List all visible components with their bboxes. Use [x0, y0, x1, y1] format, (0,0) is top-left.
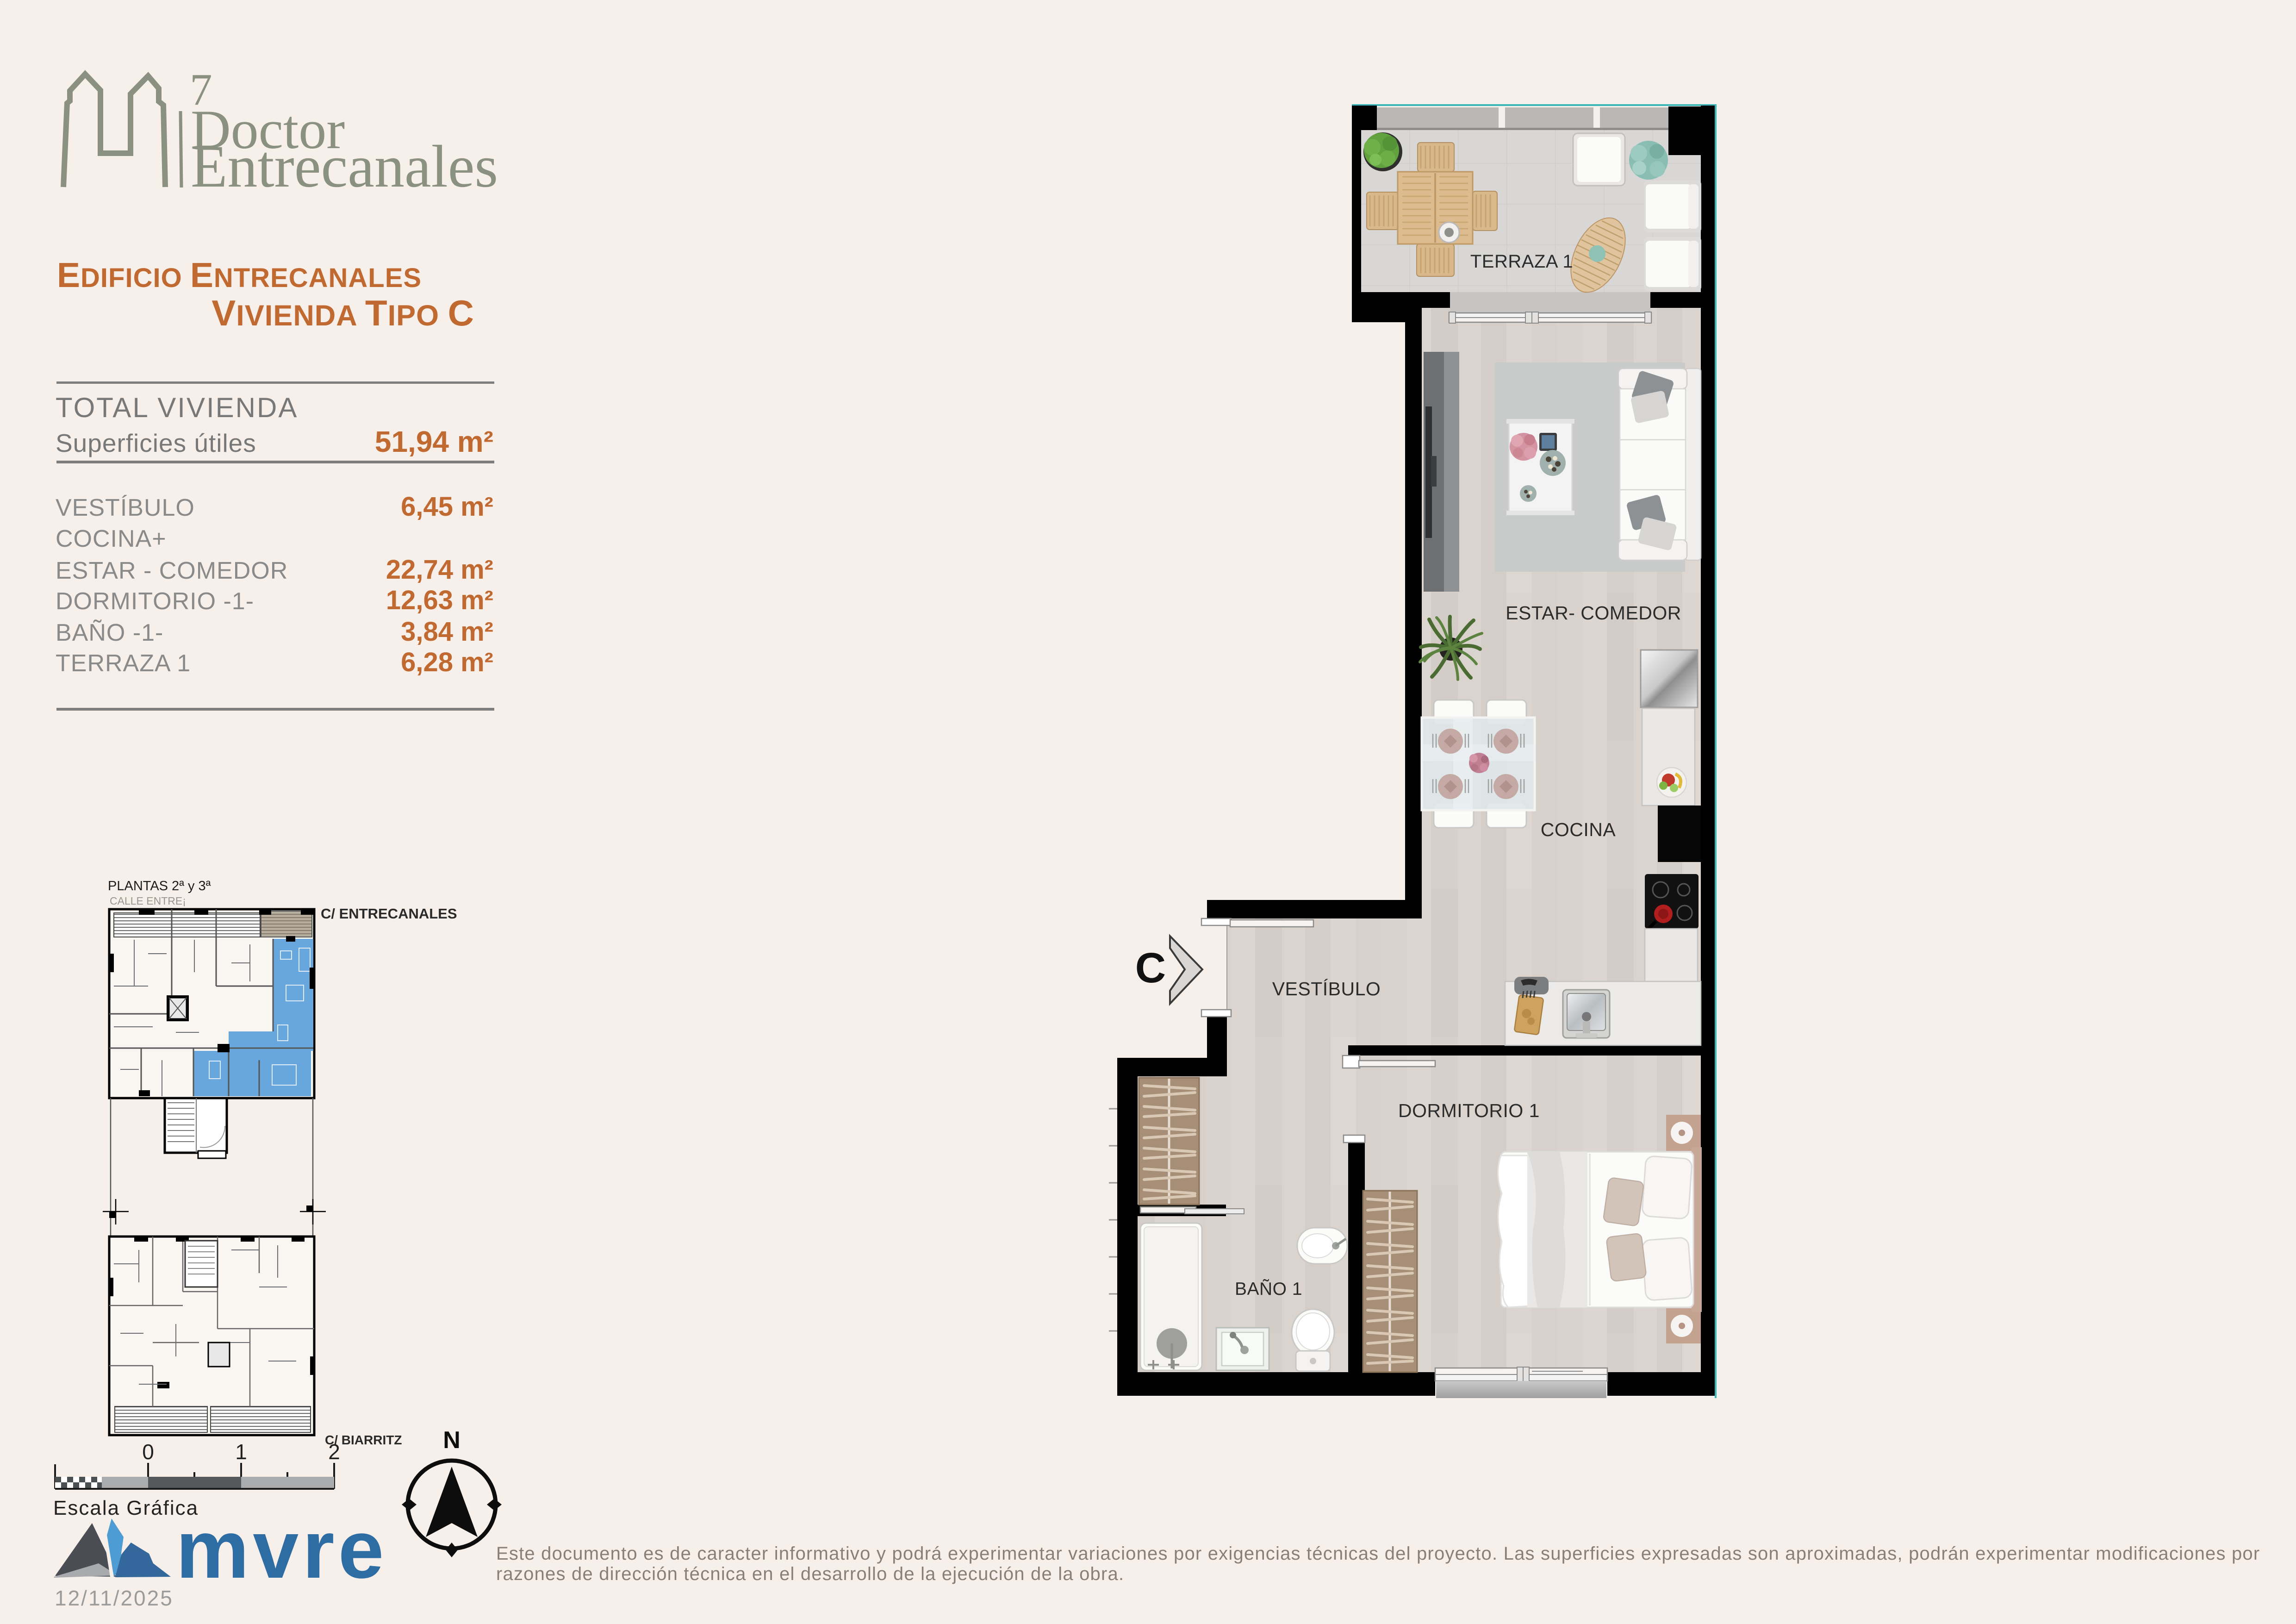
svg-text:VESTÍBULO: VESTÍBULO	[56, 494, 195, 521]
svg-text:12/11/2025: 12/11/2025	[55, 1586, 174, 1610]
svg-text:Entrecanales: Entrecanales	[191, 133, 498, 200]
svg-text:COCINA+: COCINA+	[56, 525, 167, 552]
svg-text:TERRAZA 1: TERRAZA 1	[1470, 251, 1573, 272]
svg-text:1: 1	[235, 1440, 247, 1464]
svg-text:mvre: mvre	[176, 1503, 388, 1595]
svg-text:PLANTAS 2ª y 3ª: PLANTAS 2ª y 3ª	[108, 879, 211, 893]
svg-text:DORMITORIO 1: DORMITORIO 1	[1398, 1100, 1540, 1121]
svg-text:razones de dirección técnica e: razones de dirección técnica en el desar…	[496, 1564, 1124, 1584]
svg-text:DORMITORIO -1-: DORMITORIO -1-	[56, 588, 254, 615]
svg-text:CALLE ENTRE¡: CALLE ENTRE¡	[110, 895, 186, 907]
svg-text:COCINA: COCINA	[1541, 819, 1616, 840]
svg-text:C/ ENTRECANALES: C/ ENTRECANALES	[321, 906, 457, 922]
svg-text:BAÑO -1-: BAÑO -1-	[56, 619, 163, 646]
svg-text:C: C	[1135, 944, 1166, 992]
svg-text:2: 2	[328, 1440, 340, 1464]
svg-text:3,84 m²: 3,84 m²	[401, 617, 493, 647]
svg-text:6,45 m²: 6,45 m²	[401, 492, 493, 522]
svg-text:22,74 m²: 22,74 m²	[386, 555, 493, 585]
svg-text:0: 0	[142, 1440, 154, 1464]
svg-text:TOTAL VIVIENDA: TOTAL VIVIENDA	[56, 392, 298, 423]
svg-text:N: N	[443, 1427, 460, 1454]
svg-text:ESTAR- COMEDOR: ESTAR- COMEDOR	[1506, 602, 1681, 624]
svg-text:TERRAZA 1: TERRAZA 1	[56, 650, 191, 677]
svg-text:VESTÍBULO: VESTÍBULO	[1272, 978, 1381, 999]
svg-text:12,63 m²: 12,63 m²	[386, 585, 493, 615]
svg-text:51,94 m²: 51,94 m²	[375, 425, 493, 458]
svg-text:6,28 m²: 6,28 m²	[401, 647, 493, 677]
svg-text:BAÑO 1: BAÑO 1	[1235, 1279, 1302, 1299]
svg-text:Superficies útiles: Superficies útiles	[56, 429, 256, 457]
svg-text:Este documento es de caracter: Este documento es de caracter informativ…	[496, 1543, 2260, 1564]
svg-text:ESTAR - COMEDOR: ESTAR - COMEDOR	[56, 557, 288, 584]
